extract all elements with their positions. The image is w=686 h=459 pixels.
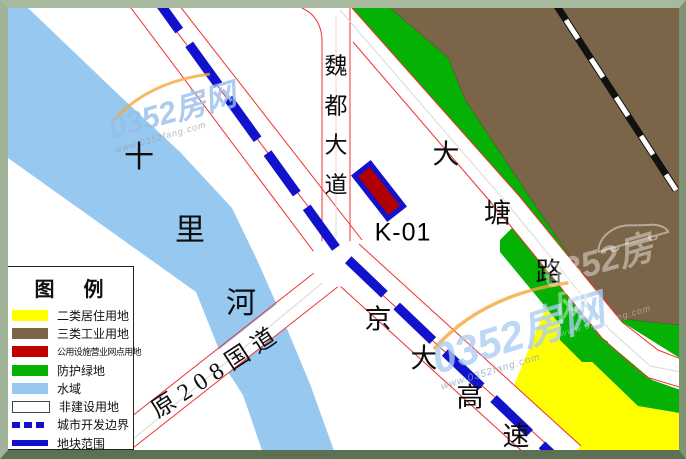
legend-item-residential: 二类居住用地 (12, 306, 133, 324)
legend-item-greenbelt: 防护绿地 (12, 361, 133, 379)
greenbelt-swatch (12, 365, 48, 376)
industrial-swatch (12, 328, 48, 339)
map-canvas: 0352房网 www.0352fang.com 0352房网 www.0352f… (8, 8, 679, 450)
development-boundary-swatch (12, 422, 48, 428)
legend-rows: 二类居住用地 三类工业用地 公用设施营业网点用地 防护绿地 (12, 306, 133, 450)
map-area: 0352房网 www.0352fang.com 0352房网 www.0352f… (8, 8, 679, 450)
public-facility-swatch (12, 346, 48, 357)
legend-item-nonconstruction: 非建设用地 (12, 397, 133, 415)
parcel-extent-swatch (12, 440, 48, 446)
legend-item-development-boundary: 城市开发边界 (12, 416, 133, 434)
legend-item-public-facility: 公用设施营业网点用地 (12, 343, 133, 361)
nonconstruction-swatch (12, 401, 50, 413)
label-parcel-k01: K-01 (375, 219, 432, 248)
planning-map-screen: 0352房网 www.0352fang.com 0352房网 www.0352f… (0, 0, 686, 459)
residential-swatch (12, 310, 48, 321)
legend-item-water: 水域 (12, 379, 133, 397)
parcel-k01 (354, 164, 403, 219)
water-swatch (12, 383, 48, 394)
legend-box: 图 例 二类居住用地 三类工业用地 公用设施营业网点用地 (8, 266, 134, 450)
legend-title: 图 例 (17, 273, 133, 302)
legend-item-parcel-extent: 地块范围 (12, 434, 133, 450)
legend-item-industrial: 三类工业用地 (12, 324, 133, 342)
